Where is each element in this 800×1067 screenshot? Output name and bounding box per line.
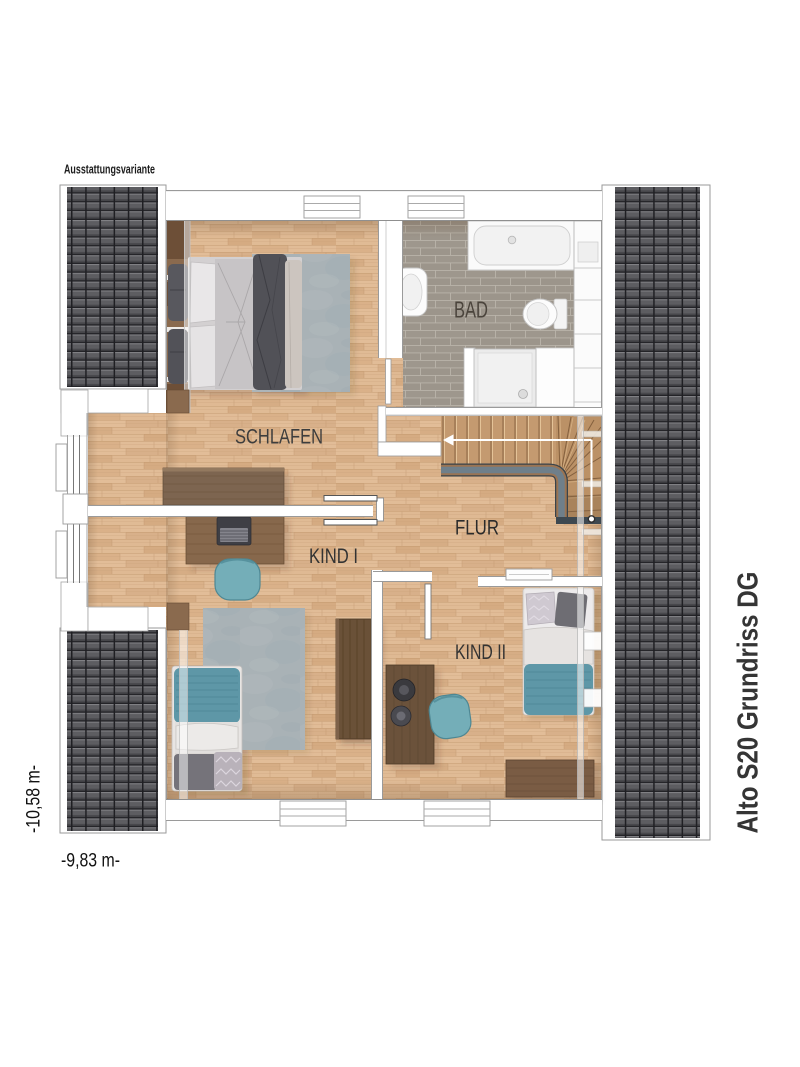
svg-text:KIND I: KIND I	[309, 544, 358, 568]
svg-text:BAD: BAD	[454, 297, 488, 323]
svg-text:-9,83 m-: -9,83 m-	[61, 850, 120, 872]
svg-text:Ausstattungsvariante: Ausstattungsvariante	[64, 163, 155, 177]
svg-text:FLUR: FLUR	[455, 516, 499, 540]
svg-text:-10,58 m-: -10,58 m-	[23, 765, 45, 833]
svg-text:Alto S20 Grundriss DG: Alto S20 Grundriss DG	[733, 572, 765, 834]
svg-text:SCHLAFEN: SCHLAFEN	[235, 426, 323, 449]
svg-text:KIND II: KIND II	[455, 641, 506, 664]
